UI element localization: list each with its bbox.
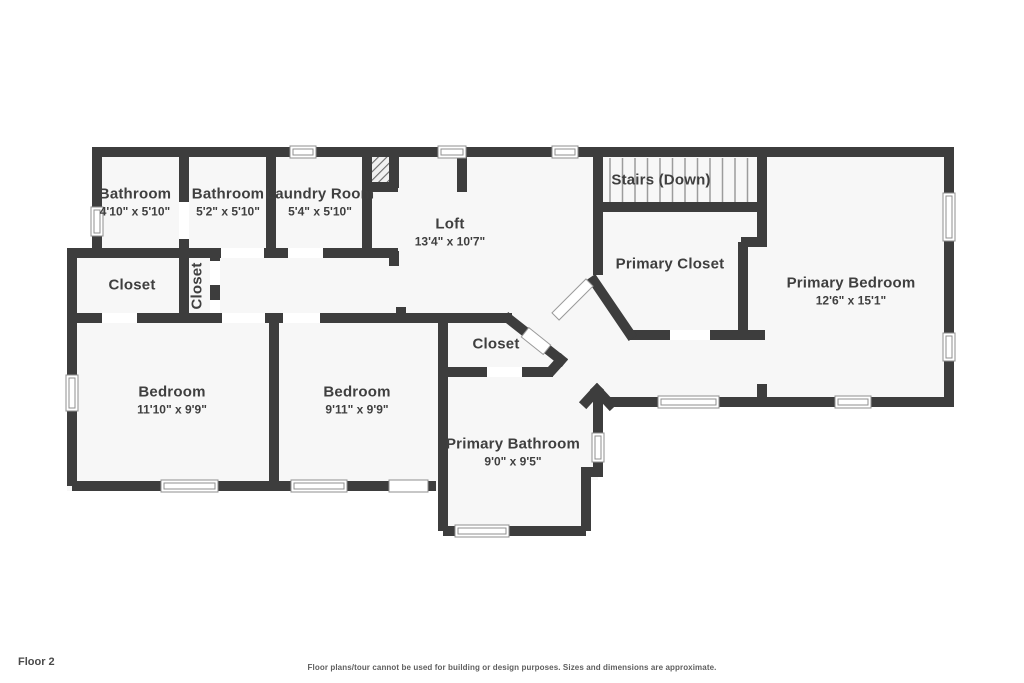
room-name: Laundry Room bbox=[266, 184, 374, 204]
room-label-bedroom-2: Bedroom 9'11" x 9'9" bbox=[323, 382, 390, 417]
room-name: Bedroom bbox=[323, 382, 390, 402]
room-dims: 11'10" x 9'9" bbox=[137, 402, 207, 418]
room-name: Closet bbox=[187, 262, 207, 309]
room-dims: 5'2" x 5'10" bbox=[192, 204, 264, 220]
room-name: Primary Bathroom bbox=[446, 434, 580, 454]
window bbox=[658, 396, 719, 408]
room-dims: 4'10" x 5'10" bbox=[99, 204, 171, 220]
room-label-primary-closet: Primary Closet bbox=[616, 254, 725, 274]
room-dims: 13'4" x 10'7" bbox=[415, 234, 485, 250]
room-dims: 9'11" x 9'9" bbox=[323, 402, 390, 418]
room-name: Bathroom bbox=[192, 184, 264, 204]
window bbox=[66, 375, 78, 411]
room-name: Closet bbox=[108, 275, 155, 295]
floorplan-screen: Bathroom 4'10" x 5'10" Bathroom 5'2" x 5… bbox=[0, 0, 1024, 683]
room-dims: 9'0" x 9'5" bbox=[446, 454, 580, 470]
room-name: Stairs (Down) bbox=[611, 170, 710, 190]
window bbox=[161, 480, 218, 492]
room-label-stairs: Stairs (Down) bbox=[611, 170, 710, 190]
window bbox=[438, 146, 466, 158]
room-label-bedroom-1: Bedroom 11'10" x 9'9" bbox=[137, 382, 207, 417]
window bbox=[552, 146, 578, 158]
room-label-laundry-room: Laundry Room 5'4" x 5'10" bbox=[266, 184, 374, 219]
room-name: Closet bbox=[472, 334, 519, 354]
room-name: Primary Closet bbox=[616, 254, 725, 274]
room-label-closet-middle: Closet bbox=[472, 334, 519, 354]
room-name: Bathroom bbox=[99, 184, 171, 204]
window bbox=[835, 396, 871, 408]
room-label-primary-bedroom: Primary Bedroom 12'6" x 15'1" bbox=[787, 273, 916, 308]
floor-label: Floor 2 bbox=[18, 656, 55, 668]
room-label-closet-hall: Closet bbox=[187, 262, 207, 309]
window bbox=[943, 193, 955, 241]
window bbox=[455, 525, 509, 537]
room-name: Bedroom bbox=[137, 382, 207, 402]
window bbox=[290, 146, 316, 158]
window bbox=[389, 480, 428, 492]
room-name: Primary Bedroom bbox=[787, 273, 916, 293]
room-label-bathroom-2: Bathroom 5'2" x 5'10" bbox=[192, 184, 264, 219]
room-dims: 12'6" x 15'1" bbox=[787, 293, 916, 309]
window bbox=[592, 433, 604, 462]
room-dims: 5'4" x 5'10" bbox=[266, 204, 374, 220]
room-label-primary-bathroom: Primary Bathroom 9'0" x 9'5" bbox=[446, 434, 580, 469]
disclaimer-text: Floor plans/tour cannot be used for buil… bbox=[308, 663, 717, 672]
room-label-bathroom-1: Bathroom 4'10" x 5'10" bbox=[99, 184, 171, 219]
room-label-closet-left: Closet bbox=[108, 275, 155, 295]
window bbox=[291, 480, 347, 492]
room-name: Loft bbox=[415, 214, 485, 234]
window bbox=[943, 333, 955, 361]
room-label-loft: Loft 13'4" x 10'7" bbox=[415, 214, 485, 249]
